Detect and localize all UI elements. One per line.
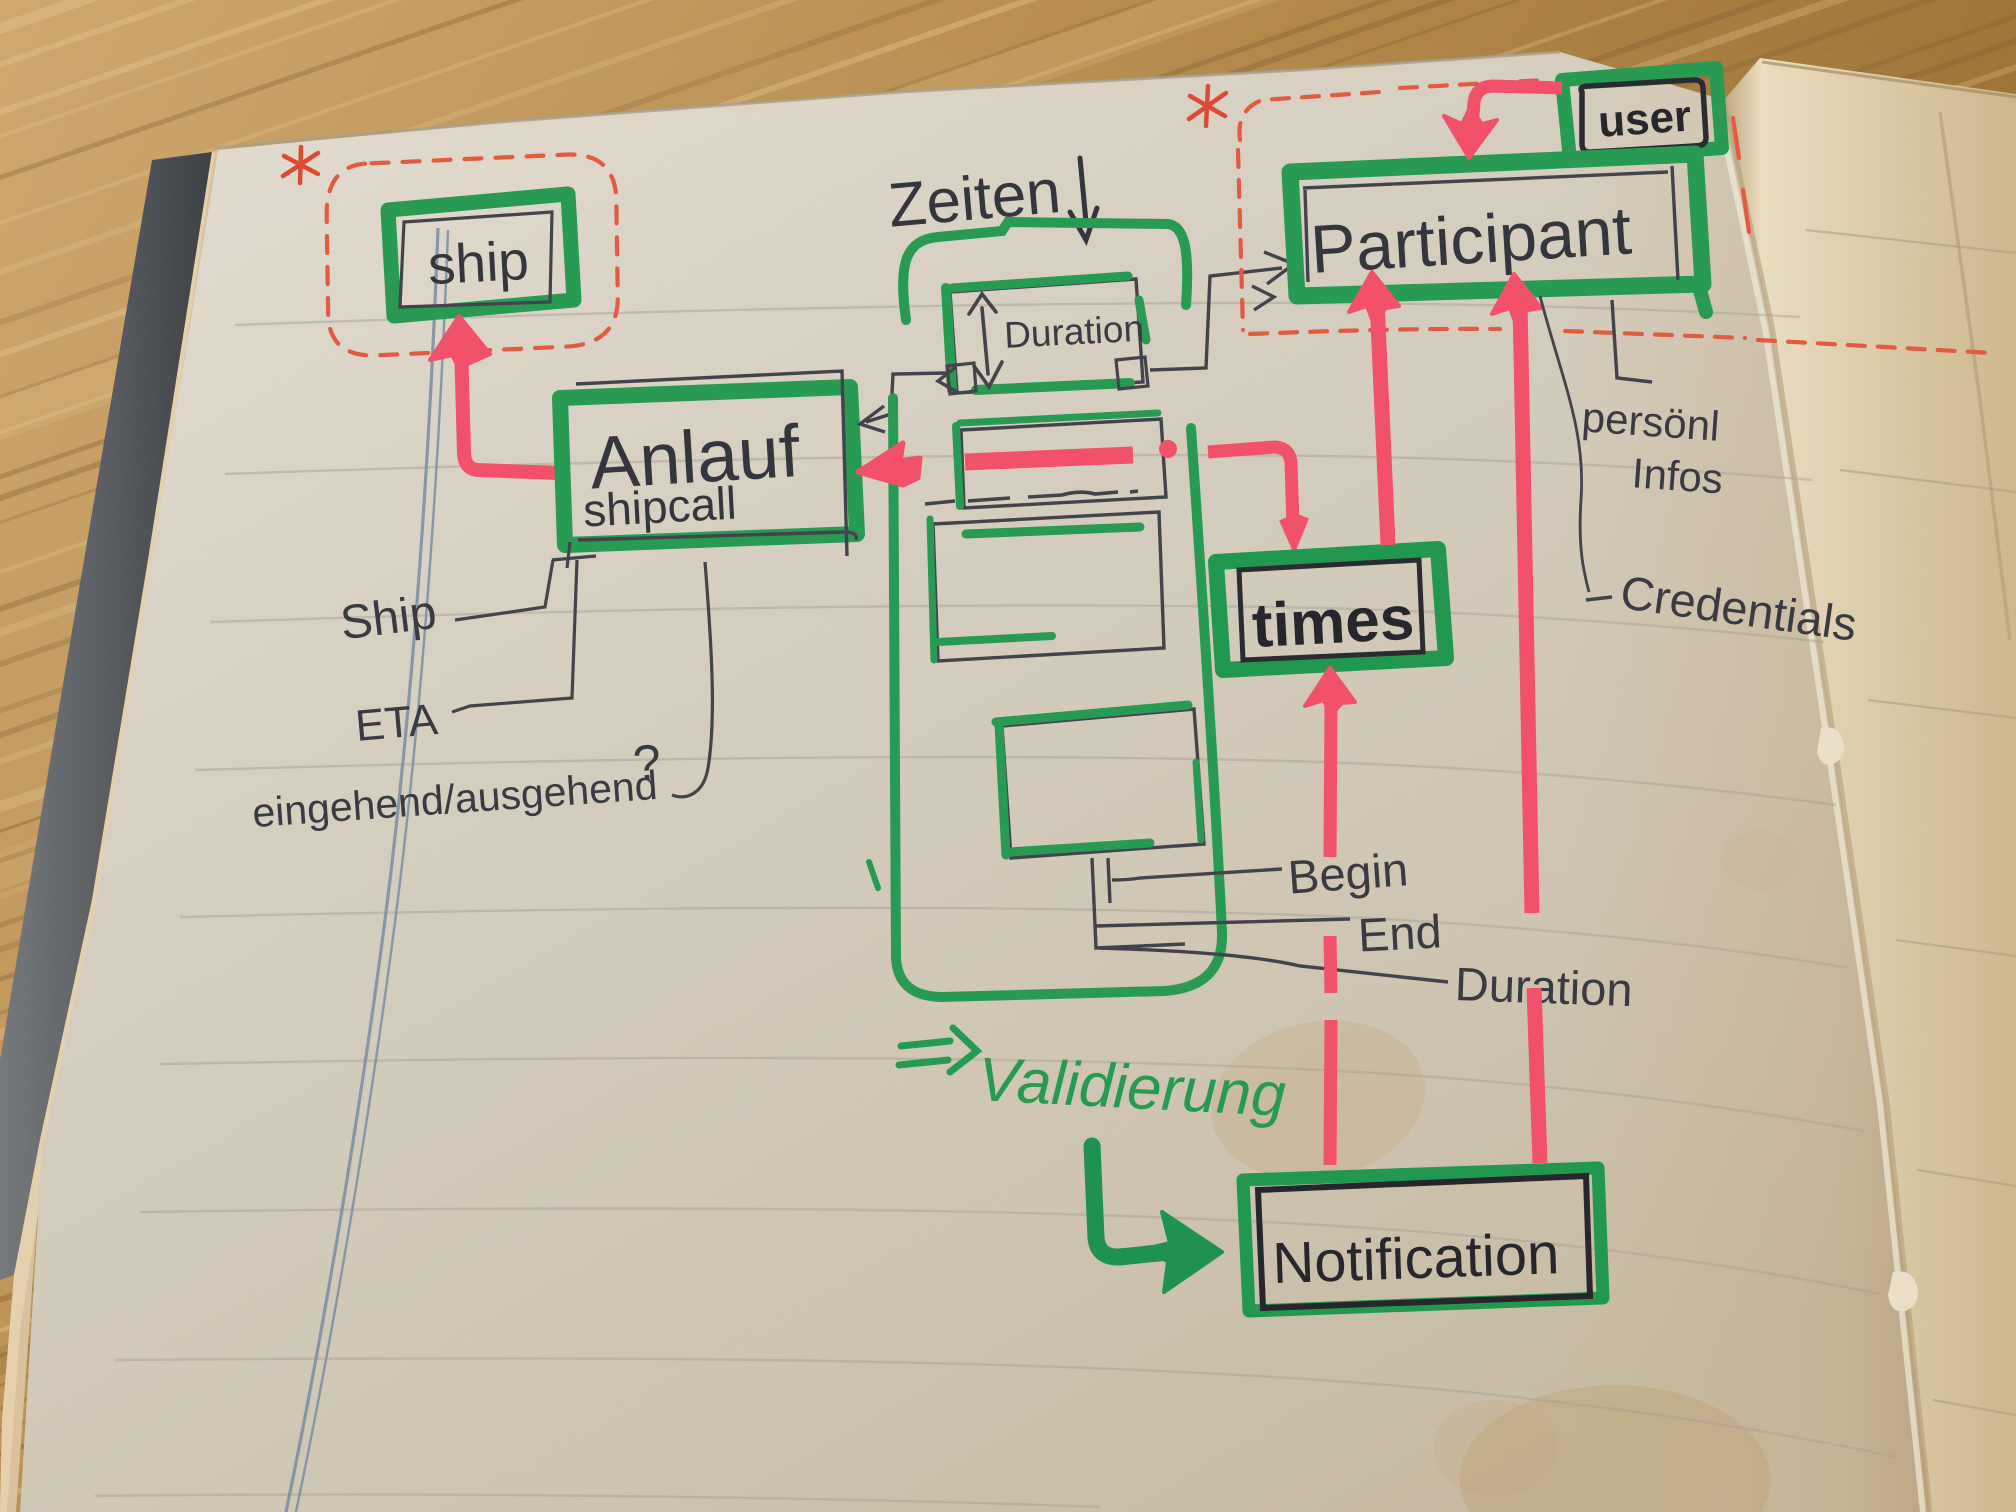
svg-text:shipcall: shipcall (582, 477, 738, 537)
svg-text:Notification: Notification (1271, 1221, 1560, 1296)
svg-text:End: End (1357, 904, 1443, 961)
svg-text:user: user (1596, 92, 1692, 147)
svg-text:persönl: persönl (1580, 393, 1721, 449)
svg-text:Duration: Duration (1003, 308, 1145, 356)
svg-text:Duration: Duration (1454, 957, 1633, 1016)
svg-text:Begin: Begin (1286, 842, 1410, 903)
svg-text:ETA: ETA (353, 695, 440, 751)
svg-text:?: ? (631, 734, 663, 792)
svg-text:times: times (1250, 584, 1415, 661)
svg-text:ship: ship (426, 229, 530, 296)
svg-text:Infos: Infos (1630, 449, 1724, 502)
